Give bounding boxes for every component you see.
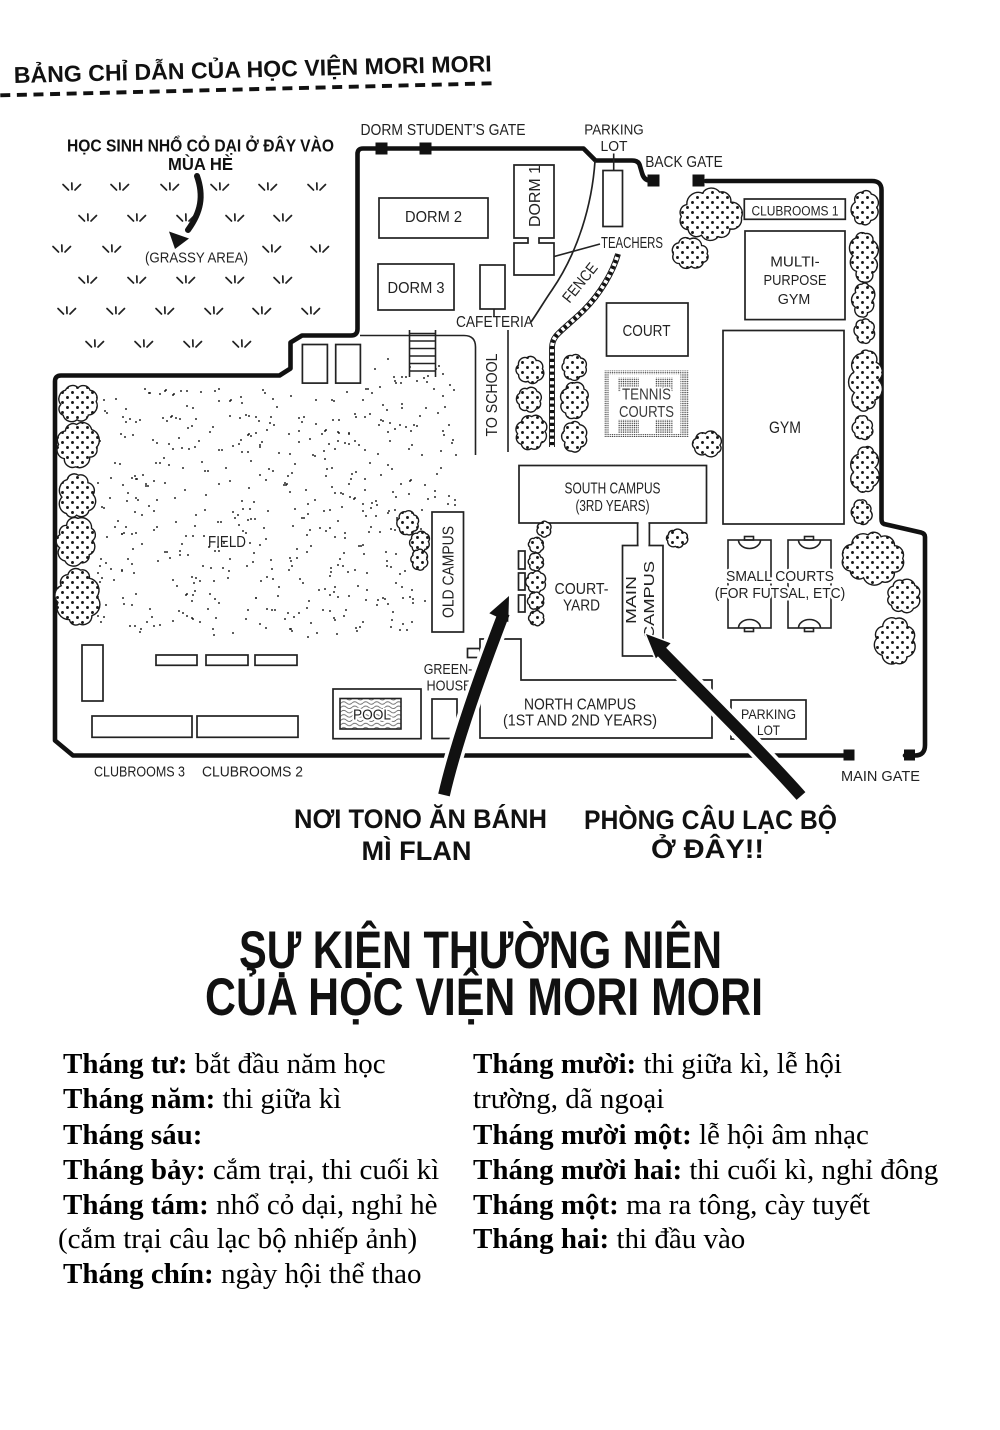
svg-text:DORM 1: DORM 1 bbox=[527, 165, 544, 227]
svg-text:YARD: YARD bbox=[563, 598, 600, 615]
svg-text:COURTS: COURTS bbox=[619, 404, 674, 421]
svg-text:Tháng sáu:: Tháng sáu: bbox=[63, 1119, 202, 1151]
svg-text:(3RD YEARS): (3RD YEARS) bbox=[576, 498, 650, 515]
svg-text:(cắm trại câu lạc bộ nhiếp ảnh: (cắm trại câu lạc bộ nhiếp ảnh) bbox=[58, 1223, 417, 1255]
svg-text:PHÒNG CÂU LẠC BỘ: PHÒNG CÂU LẠC BỘ bbox=[584, 804, 837, 835]
svg-text:LOT: LOT bbox=[601, 138, 628, 155]
svg-text:COURT: COURT bbox=[623, 323, 671, 340]
svg-text:DORM 2: DORM 2 bbox=[405, 209, 462, 226]
svg-text:TO SCHOOL: TO SCHOOL bbox=[484, 353, 501, 436]
svg-text:Tháng hai: thi đầu vào: Tháng hai: thi đầu vào bbox=[473, 1223, 745, 1255]
svg-text:MULTI-: MULTI- bbox=[770, 254, 820, 271]
svg-text:SMALL COURTS: SMALL COURTS bbox=[726, 568, 834, 585]
svg-text:OLD CAMPUS: OLD CAMPUS bbox=[441, 526, 458, 618]
svg-text:CLUBROOMS 3: CLUBROOMS 3 bbox=[94, 764, 185, 781]
svg-text:NƠI TONO ĂN BÁNH: NƠI TONO ĂN BÁNH bbox=[294, 803, 547, 834]
svg-text:Tháng bảy: cắm trại, thi cuối: Tháng bảy: cắm trại, thi cuối kì bbox=[63, 1154, 439, 1186]
svg-text:HOUSE: HOUSE bbox=[427, 678, 472, 695]
svg-text:trường, dã ngoại: trường, dã ngoại bbox=[473, 1083, 664, 1115]
svg-text:PARKING: PARKING bbox=[741, 706, 796, 722]
svg-text:CLUBROOMS 2: CLUBROOMS 2 bbox=[202, 764, 303, 781]
svg-text:POOL: POOL bbox=[353, 707, 391, 724]
svg-text:GYM: GYM bbox=[769, 419, 801, 437]
svg-text:Tháng tư: bắt đầu năm học: Tháng tư: bắt đầu năm học bbox=[63, 1048, 386, 1080]
svg-text:LOT: LOT bbox=[757, 722, 780, 738]
svg-text:CỦA HỌC VIỆN MORI MORI: CỦA HỌC VIỆN MORI MORI bbox=[205, 966, 763, 1027]
svg-text:Tháng một: ma ra tông, cày tuy: Tháng một: ma ra tông, cày tuyết bbox=[473, 1189, 870, 1221]
svg-text:MAIN: MAIN bbox=[623, 576, 640, 624]
svg-text:FIELD: FIELD bbox=[208, 534, 246, 551]
svg-text:(1ST AND 2ND YEARS): (1ST AND 2ND YEARS) bbox=[503, 713, 657, 730]
svg-text:CAMPUS: CAMPUS bbox=[641, 561, 658, 639]
svg-text:CAFETERIA: CAFETERIA bbox=[456, 314, 533, 331]
svg-text:MAIN GATE: MAIN GATE bbox=[841, 768, 920, 785]
svg-text:GYM: GYM bbox=[778, 291, 811, 308]
svg-text:TENNIS: TENNIS bbox=[622, 387, 671, 404]
svg-text:Tháng tám: nhổ cỏ dại, nghỉ hè: Tháng tám: nhổ cỏ dại, nghỉ hè bbox=[63, 1189, 438, 1221]
svg-text:PURPOSE: PURPOSE bbox=[764, 272, 827, 289]
svg-text:DORM 3: DORM 3 bbox=[388, 280, 445, 297]
svg-text:MÙA HÈ: MÙA HÈ bbox=[168, 153, 233, 174]
svg-text:Tháng năm: thi giữa kì: Tháng năm: thi giữa kì bbox=[63, 1083, 341, 1115]
svg-text:SOUTH CAMPUS: SOUTH CAMPUS bbox=[565, 481, 661, 498]
svg-text:Ở ĐÂY!!: Ở ĐÂY!! bbox=[651, 832, 764, 864]
svg-text:CLUBROOMS 1: CLUBROOMS 1 bbox=[752, 204, 839, 219]
svg-text:(FOR FUTSAL, ETC): (FOR FUTSAL, ETC) bbox=[715, 585, 846, 602]
svg-text:(GRASSY AREA): (GRASSY AREA) bbox=[145, 250, 248, 267]
svg-text:Tháng mười: thi giữa kì, lễ hộ: Tháng mười: thi giữa kì, lễ hội bbox=[473, 1048, 842, 1080]
svg-text:TEACHERS: TEACHERS bbox=[601, 235, 663, 252]
svg-text:HỌC SINH NHỔ CỎ DẠI Ở ĐÂY VÀO: HỌC SINH NHỔ CỎ DẠI Ở ĐÂY VÀO bbox=[67, 135, 334, 156]
svg-text:MÌ FLAN: MÌ FLAN bbox=[362, 835, 472, 866]
svg-text:COURT-: COURT- bbox=[555, 581, 609, 598]
svg-text:NORTH CAMPUS: NORTH CAMPUS bbox=[524, 697, 636, 714]
svg-text:Tháng mười một: lễ hội âm nhạc: Tháng mười một: lễ hội âm nhạc bbox=[473, 1119, 869, 1151]
svg-text:Tháng chín: ngày hội thể thao: Tháng chín: ngày hội thể thao bbox=[63, 1258, 422, 1290]
svg-text:BACK GATE: BACK GATE bbox=[645, 154, 723, 171]
svg-text:Tháng mười hai: thi cuối kì, n: Tháng mười hai: thi cuối kì, nghỉ đông bbox=[473, 1154, 938, 1186]
svg-text:GREEN-: GREEN- bbox=[424, 661, 473, 678]
svg-text:PARKING: PARKING bbox=[584, 122, 644, 139]
svg-text:DORM STUDENT’S GATE: DORM STUDENT’S GATE bbox=[361, 122, 526, 139]
